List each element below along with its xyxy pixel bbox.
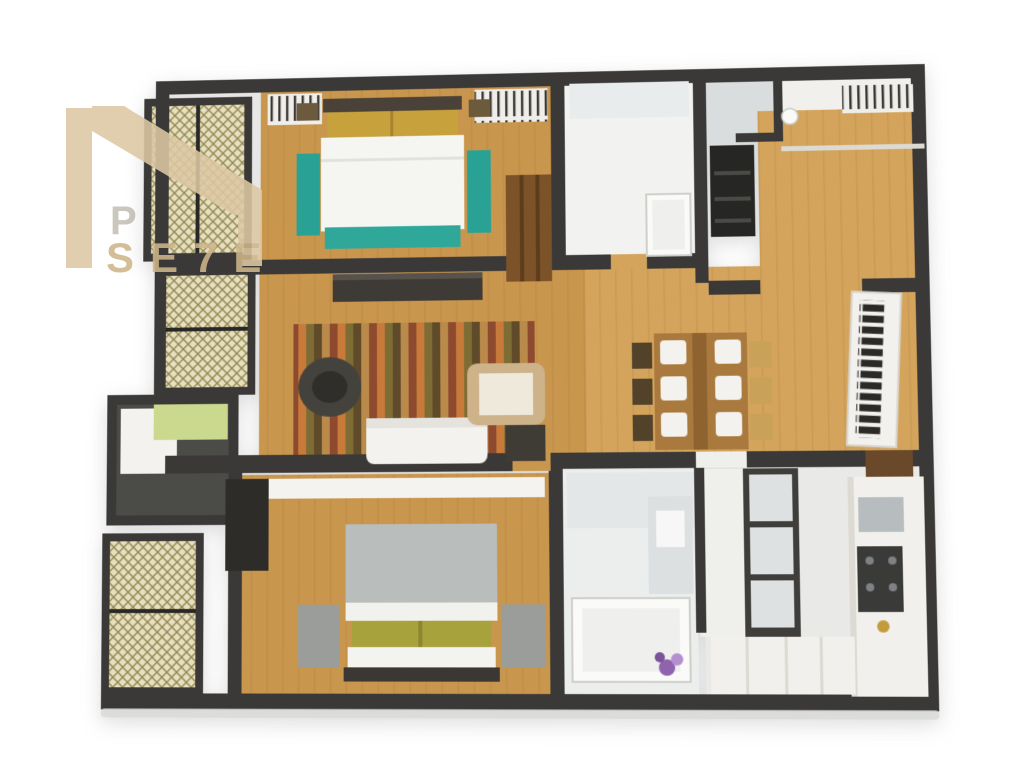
side-table	[505, 425, 545, 461]
shelf-box	[751, 580, 795, 627]
plate	[660, 340, 687, 364]
dining-chair	[632, 343, 652, 369]
bed-bottom-pillow-gap	[418, 621, 422, 647]
kitchen-sink	[858, 497, 904, 532]
shelf-unit	[743, 468, 801, 640]
wall-bedroom-bath-divider	[550, 72, 566, 270]
appliance-shelf2	[714, 196, 750, 201]
bed-bottom-white-band	[346, 602, 498, 620]
plate	[660, 376, 687, 400]
nightstand-left	[297, 103, 318, 121]
bench-gray-left	[298, 605, 340, 668]
bookshelf	[847, 292, 901, 448]
dining-table-runner	[692, 333, 708, 450]
closet-top-divider	[195, 105, 200, 253]
closet-bottom-divider	[110, 609, 196, 613]
shelf-box	[749, 474, 793, 521]
dining-chair	[632, 379, 652, 405]
plate	[661, 412, 688, 436]
door-corridor	[696, 451, 747, 468]
appliance-shelf3	[715, 218, 751, 223]
wall-powder-vertical	[773, 78, 783, 139]
dining-chair	[749, 341, 772, 367]
floor-plan-wrap	[93, 50, 963, 725]
dresser-band	[259, 477, 545, 499]
door-bathroom-top	[611, 254, 647, 269]
cooktop	[857, 546, 904, 612]
wardrobe-dark	[225, 479, 269, 571]
bench-gray-right	[501, 604, 546, 667]
bookshelf-books	[855, 300, 884, 438]
slab-shadow	[101, 708, 940, 719]
plate	[715, 339, 742, 363]
wall-foyer-south-left	[709, 280, 761, 295]
dining-chair	[750, 414, 773, 440]
appliance-shelf1	[714, 171, 750, 176]
wall-left-top	[155, 81, 170, 267]
bed-top-teal-runner	[325, 225, 461, 249]
plate	[716, 412, 743, 436]
foyer-sink	[782, 108, 798, 124]
closet-bottom-doors	[109, 541, 196, 687]
wardrobe-brown-body	[506, 174, 552, 281]
floor-plan	[93, 50, 963, 725]
bath-top-tub-inner	[652, 200, 685, 250]
wardrobe-brown-line1	[519, 175, 524, 282]
foyer-closet-rail	[842, 84, 914, 113]
bed-bottom-gray-duvet	[346, 524, 498, 603]
kitchen-counter-bottom	[711, 637, 856, 695]
bath-bottom-sink	[656, 510, 685, 547]
bed-bottom-white-pillows	[348, 647, 496, 667]
bed-top-pillow-gap	[390, 111, 393, 136]
balcony-lime-mat	[154, 404, 228, 440]
wall-bedroom-bath-bottom-divider	[549, 467, 565, 696]
bed-bottom-headboard	[344, 667, 500, 681]
cooktop-body	[857, 546, 904, 612]
wall-left-mid	[154, 261, 167, 398]
dining-chairs-left	[632, 343, 653, 442]
shelf-box	[750, 527, 794, 574]
appliance-stack	[710, 145, 756, 237]
bed-top-duvet	[321, 135, 464, 232]
wardrobe-brown	[506, 174, 552, 281]
plate	[715, 376, 742, 400]
bath-top-vanity	[569, 81, 689, 119]
dining-chairs-right	[749, 341, 773, 440]
floorplan-scene: PO	[0, 0, 1024, 768]
armchair-cushion	[479, 373, 533, 415]
wardrobe-brown-line2	[535, 175, 540, 282]
wall-foyer-south-right	[862, 278, 928, 293]
dining-chair	[750, 377, 773, 403]
kitchen-counter-bottom-body	[711, 637, 856, 695]
bench-teal-right	[467, 150, 491, 233]
bench-teal-left	[297, 153, 320, 235]
wall-powder-horizontal	[736, 132, 784, 142]
wall-bottom	[101, 693, 939, 711]
logo-left-bar	[66, 108, 92, 268]
nightstand-right	[469, 99, 491, 117]
wall-living-bedroom-divider	[165, 453, 551, 474]
dining-chair	[633, 415, 653, 441]
